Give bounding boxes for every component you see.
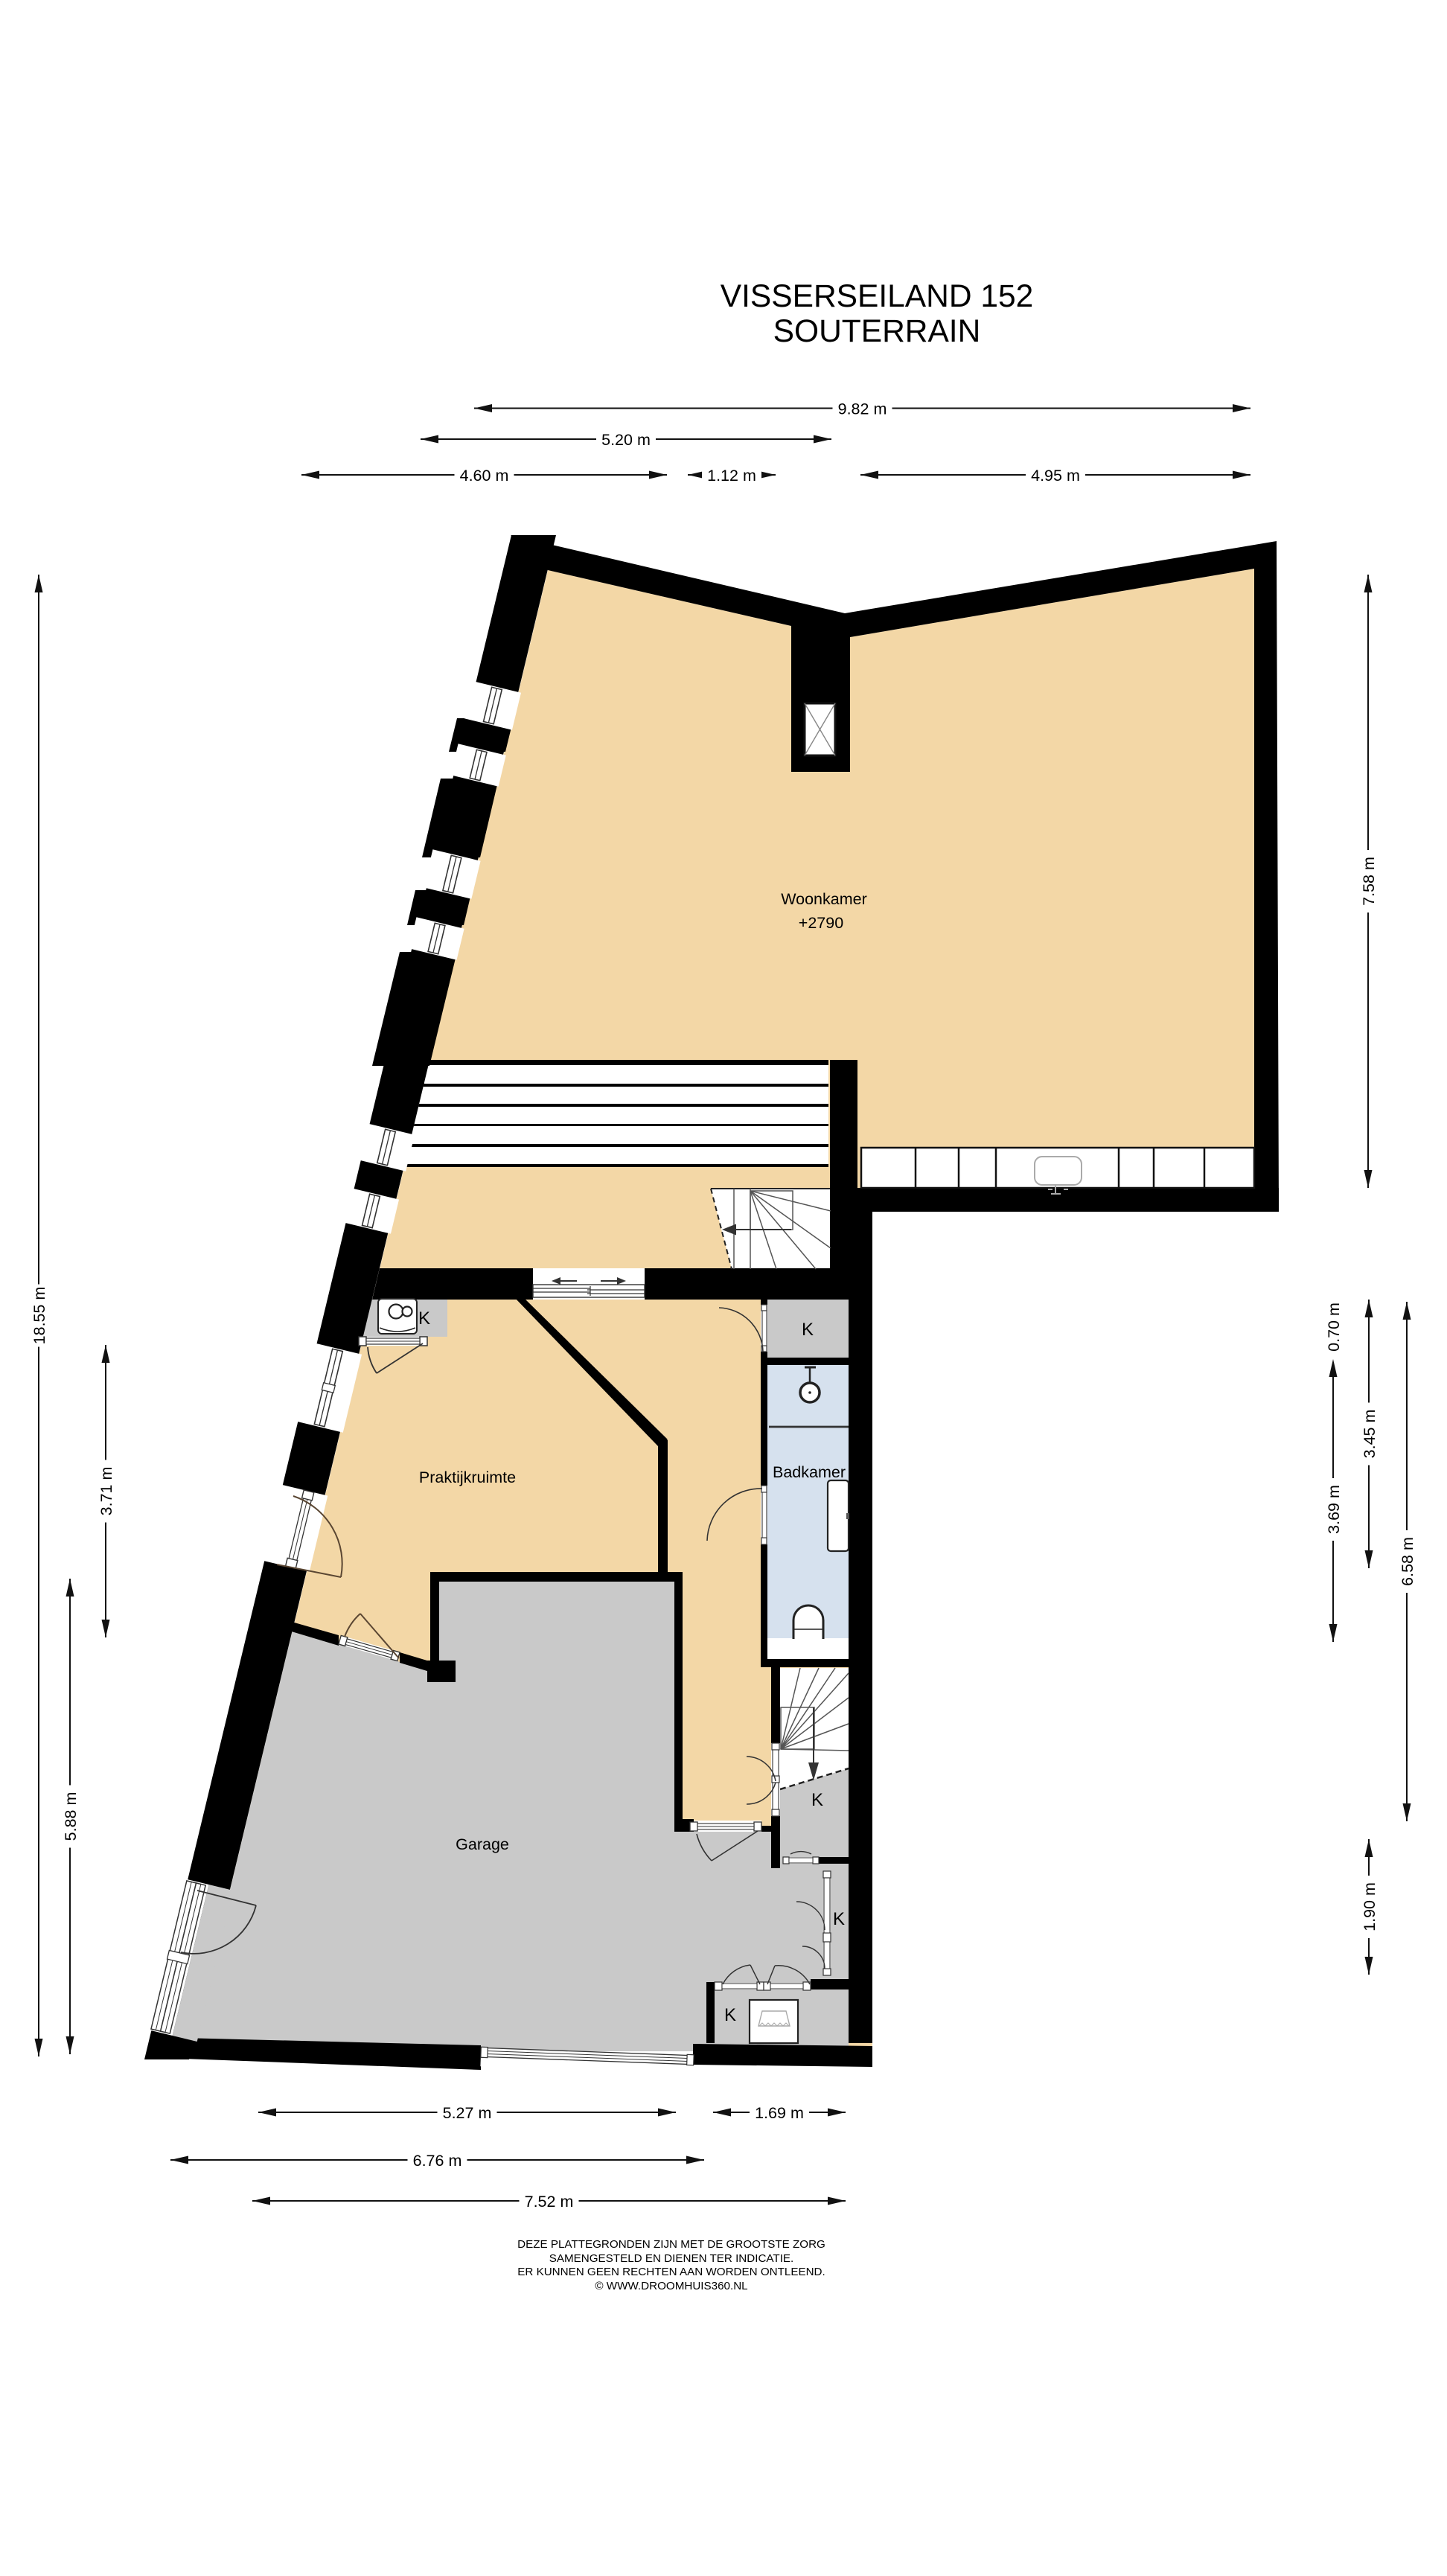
svg-text:9.82 m: 9.82 m [838, 400, 887, 418]
svg-text:Badkamer: Badkamer [773, 1463, 846, 1481]
svg-text:0.70 m: 0.70 m [1325, 1303, 1343, 1352]
svg-text:1.90 m: 1.90 m [1361, 1882, 1379, 1931]
svg-text:1.12 m: 1.12 m [707, 467, 756, 485]
svg-text:5.20 m: 5.20 m [601, 431, 651, 449]
svg-text:7.52 m: 7.52 m [525, 2193, 574, 2211]
svg-text:5.88 m: 5.88 m [62, 1792, 80, 1841]
svg-text:K: K [833, 1909, 845, 1929]
svg-text:6.58 m: 6.58 m [1399, 1537, 1416, 1586]
svg-text:K: K [802, 1320, 814, 1340]
svg-text:6.76 m: 6.76 m [413, 2152, 462, 2170]
svg-text:Woonkamer: Woonkamer [781, 890, 867, 908]
svg-text:7.58 m: 7.58 m [1360, 857, 1378, 906]
svg-text:4.95 m: 4.95 m [1031, 467, 1080, 485]
svg-text:Garage: Garage [456, 1835, 509, 1853]
svg-text:VISSERSEILAND 152: VISSERSEILAND 152 [721, 279, 1033, 314]
svg-text:© WWW.DROOMHUIS360.NL: © WWW.DROOMHUIS360.NL [595, 2280, 747, 2292]
svg-text:3.69 m: 3.69 m [1325, 1485, 1343, 1534]
svg-text:5.27 m: 5.27 m [443, 2104, 492, 2122]
svg-text:K: K [724, 2005, 736, 2025]
svg-text:18.55 m: 18.55 m [31, 1287, 48, 1345]
svg-text:1.69 m: 1.69 m [755, 2104, 804, 2122]
svg-text:SOUTERRAIN: SOUTERRAIN [773, 314, 981, 349]
svg-text:3.71 m: 3.71 m [98, 1467, 115, 1516]
svg-text:K: K [418, 1308, 430, 1329]
svg-text:ER KUNNEN GEEN RECHTEN AAN WOR: ER KUNNEN GEEN RECHTEN AAN WORDEN ONTLEE… [517, 2266, 825, 2278]
svg-text:+2790: +2790 [799, 914, 843, 932]
svg-text:4.60 m: 4.60 m [460, 467, 509, 485]
svg-text:3.45 m: 3.45 m [1361, 1410, 1379, 1459]
svg-text:Praktijkruimte: Praktijkruimte [419, 1468, 516, 1486]
svg-text:K: K [811, 1790, 823, 1810]
svg-text:DEZE PLATTEGRONDEN ZIJN MET DE: DEZE PLATTEGRONDEN ZIJN MET DE GROOTSTE … [517, 2238, 825, 2251]
svg-text:SAMENGESTELD EN DIENEN TER IND: SAMENGESTELD EN DIENEN TER INDICATIE. [549, 2252, 794, 2265]
